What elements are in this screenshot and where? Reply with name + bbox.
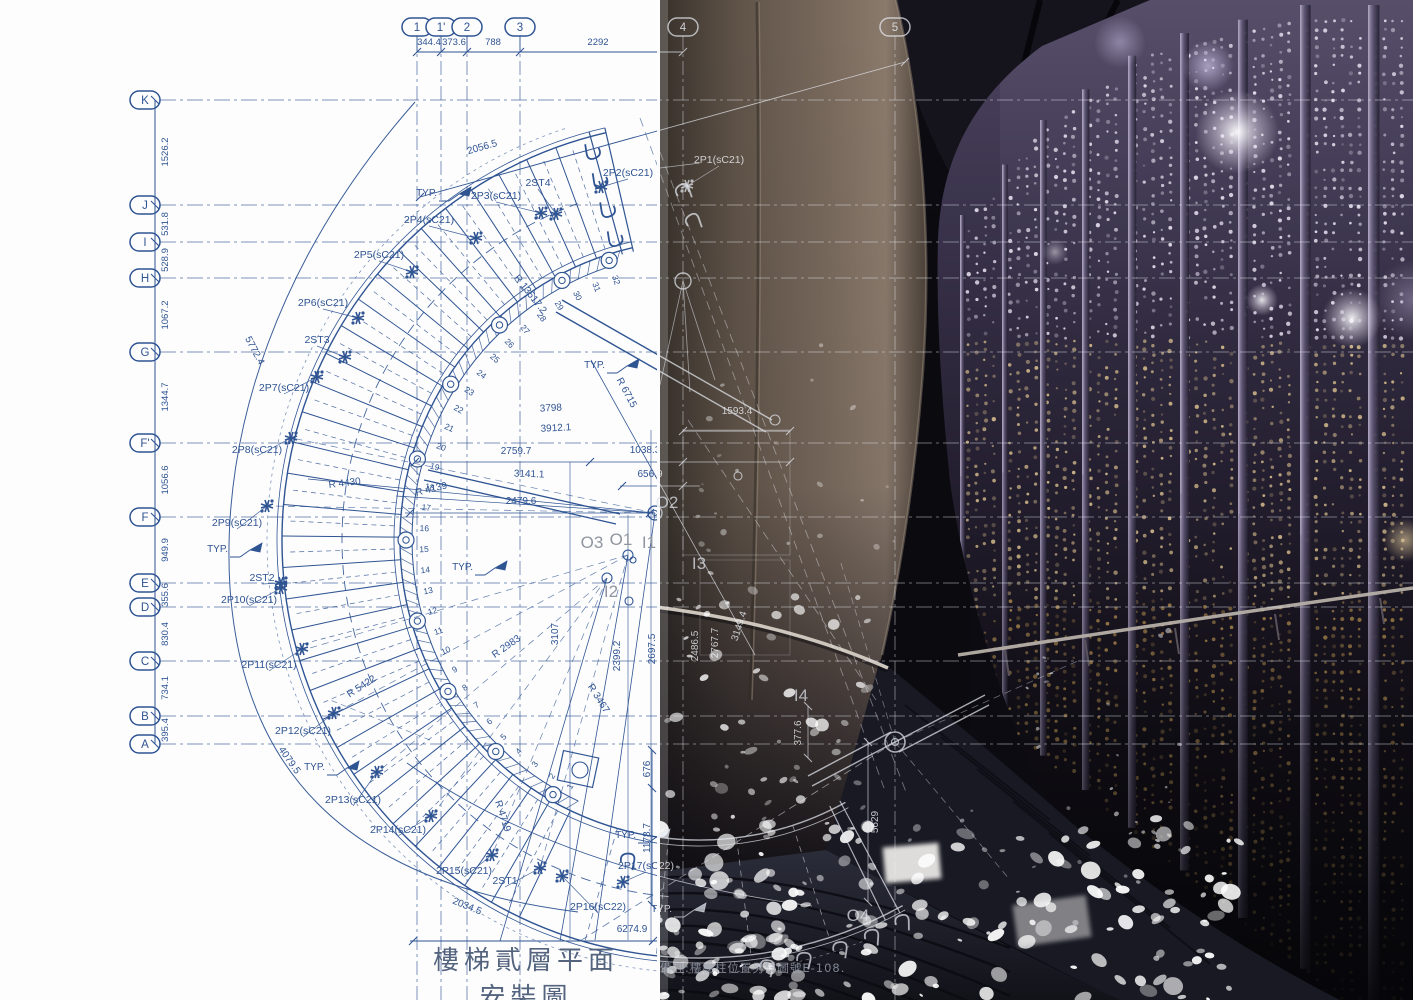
part-label: 2P13(sC21) xyxy=(325,794,381,806)
top-dim: 788 xyxy=(485,37,501,48)
row-dim: 830.4 xyxy=(160,622,171,646)
drawing-note: 備註:樓梯柱位置另詳圖號E-108. xyxy=(660,960,845,976)
row-dim: 1526.2 xyxy=(160,137,171,166)
dim-label: 3107 xyxy=(550,622,561,645)
grid-bubble-label: 4 xyxy=(680,22,687,34)
dim-label: 6274.9 xyxy=(617,924,648,935)
typ-label: TYP. xyxy=(416,188,437,199)
grid-bubble-label: G xyxy=(141,347,150,359)
typ-label: TYP. xyxy=(584,360,605,371)
part-label: 2P6(sC21) xyxy=(298,297,348,309)
grid-node-label: O2 xyxy=(656,493,679,512)
grid-node-label: I2 xyxy=(604,582,618,601)
row-dim: 1344.7 xyxy=(160,382,171,411)
typ-label: TYP. xyxy=(452,562,473,573)
drawing-title: 樓梯貳層平面安裝圖 xyxy=(418,940,634,1000)
grid-bubble-label: F xyxy=(141,512,148,524)
dim-label: 2486.5 xyxy=(690,630,701,661)
dim-label: 2697.5 xyxy=(647,633,658,664)
grid-bubble-label: I xyxy=(143,237,146,249)
top-dim: 2292 xyxy=(587,37,608,48)
grid-bubble-label: C xyxy=(141,656,149,668)
row-dim: 528.9 xyxy=(160,248,171,272)
dim-label: 5629 xyxy=(870,810,881,833)
dim-label: 377.6 xyxy=(793,720,804,745)
part-label: 2ST3 xyxy=(304,334,329,346)
row-dim: 531.8 xyxy=(160,212,171,236)
typ-label: TYP. xyxy=(207,544,228,555)
photo-staircase xyxy=(649,0,1413,1000)
typ-label: TYP. xyxy=(615,830,636,841)
part-label: 2ST2 xyxy=(249,572,274,584)
grid-bubble-label: H xyxy=(141,273,149,285)
grid-bubble-label: J xyxy=(142,200,148,212)
grid-bubble-label: K xyxy=(141,95,149,107)
row-dim: 355.6 xyxy=(160,583,171,607)
row-dim: 1056.6 xyxy=(160,465,171,494)
step-number: 16 xyxy=(419,523,429,533)
row-dim: 395.4 xyxy=(160,718,171,742)
dim-label: 2767.7 xyxy=(710,627,721,658)
stair-plan-canvas: KJIHGF'FEDCBA11'23451526.2531.8528.91067… xyxy=(0,0,1413,1000)
top-dim: 373.6 xyxy=(442,37,466,48)
grid-bubble-label: 5 xyxy=(892,22,898,34)
grid-node-label: I4 xyxy=(794,686,808,705)
part-label: 2ST4 xyxy=(525,177,550,189)
grid-bubble-label: F' xyxy=(140,438,149,450)
grid-node-label: I1 xyxy=(642,533,656,552)
part-label: 2P16(sC22) xyxy=(570,901,626,913)
composite-stair-plan-and-photo: KJIHGF'FEDCBA11'23451526.2531.8528.91067… xyxy=(0,0,1413,1000)
grid-node-label: O3 xyxy=(581,533,604,552)
part-label: 2P14(sC21) xyxy=(370,824,426,836)
top-dim: 344.4 xyxy=(417,37,441,48)
part-label: 2P4(sC21) xyxy=(404,214,454,226)
part-label: 2P7(sC21) xyxy=(259,382,309,394)
part-label: 2P10(sC21) xyxy=(221,594,277,606)
typ-label: TYP. xyxy=(304,762,325,773)
part-label: 2P11(sC21) xyxy=(241,659,296,671)
grid-bubble-label: 1 xyxy=(414,22,420,34)
part-label: 2P1(sC21) xyxy=(694,154,744,166)
part-label: 2P12(sC21) xyxy=(275,725,331,737)
grid-node-label: O4 xyxy=(847,906,870,925)
grid-bubble-label: E xyxy=(141,578,149,590)
grid-bubble-label: D xyxy=(141,602,149,614)
step-number: 14 xyxy=(420,564,431,575)
dim-label: 3798 xyxy=(539,402,562,414)
step-number: 15 xyxy=(419,544,429,554)
dim-label: 3141.1 xyxy=(514,468,545,480)
part-label: 2P5(sC21) xyxy=(354,249,404,261)
grid-bubble-label: 3 xyxy=(517,22,523,34)
grid-bubble-label: A xyxy=(141,739,149,751)
dim-label: 3912.1 xyxy=(540,422,572,435)
part-label: 2P9(sC21) xyxy=(212,517,262,529)
row-dim: 949.9 xyxy=(160,538,171,562)
part-label: 2P3(sC21) xyxy=(471,190,521,202)
part-label: 2P2(sC21) xyxy=(603,167,653,179)
grid-bubble-label: 2 xyxy=(464,22,470,34)
part-label: 2ST1 xyxy=(492,875,517,887)
row-dim: 734.1 xyxy=(160,676,171,700)
part-label: 2P15(sC21) xyxy=(436,865,492,877)
row-dim: 1067.2 xyxy=(160,300,171,329)
dim-label: 2759.7 xyxy=(501,446,532,457)
grid-node-label: O1 xyxy=(610,530,633,549)
grid-bubble-label: 1' xyxy=(437,22,446,34)
grid-bubble-label: B xyxy=(141,711,149,723)
part-label: 2P8(sC21) xyxy=(232,444,282,456)
dim-label: 1038.3 xyxy=(630,445,661,456)
step-number: 17 xyxy=(421,502,432,513)
dim-label: 2399.2 xyxy=(612,640,623,671)
grid-node-label: I3 xyxy=(692,554,706,573)
